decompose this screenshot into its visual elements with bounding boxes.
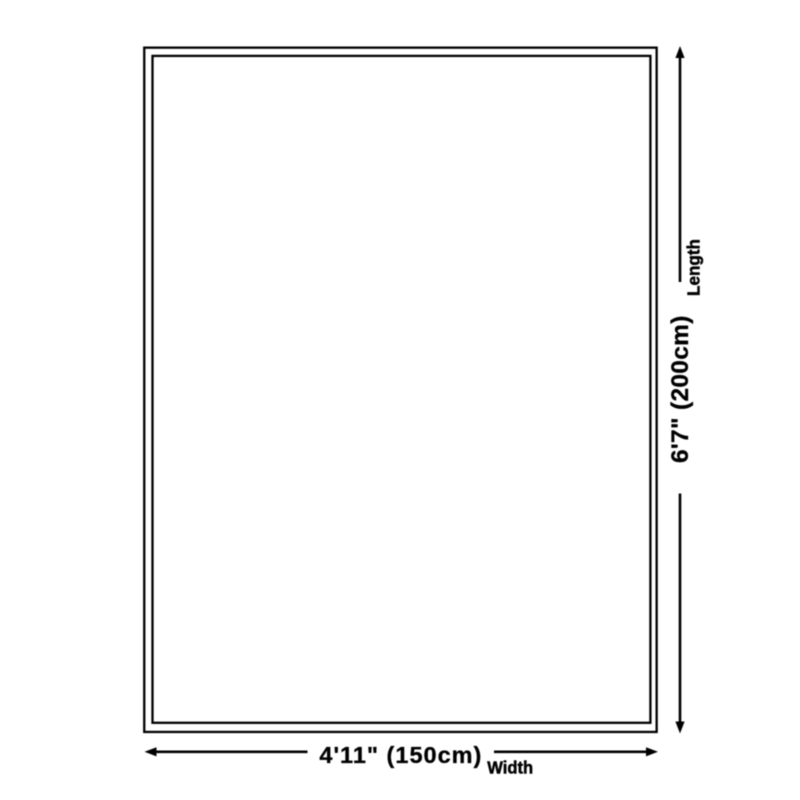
- svg-text:6'7" (200cm): 6'7" (200cm): [667, 315, 694, 463]
- svg-text:Length: Length: [683, 239, 704, 296]
- svg-text:Width: Width: [487, 757, 533, 778]
- svg-text:4'11" (150cm): 4'11" (150cm): [319, 742, 482, 768]
